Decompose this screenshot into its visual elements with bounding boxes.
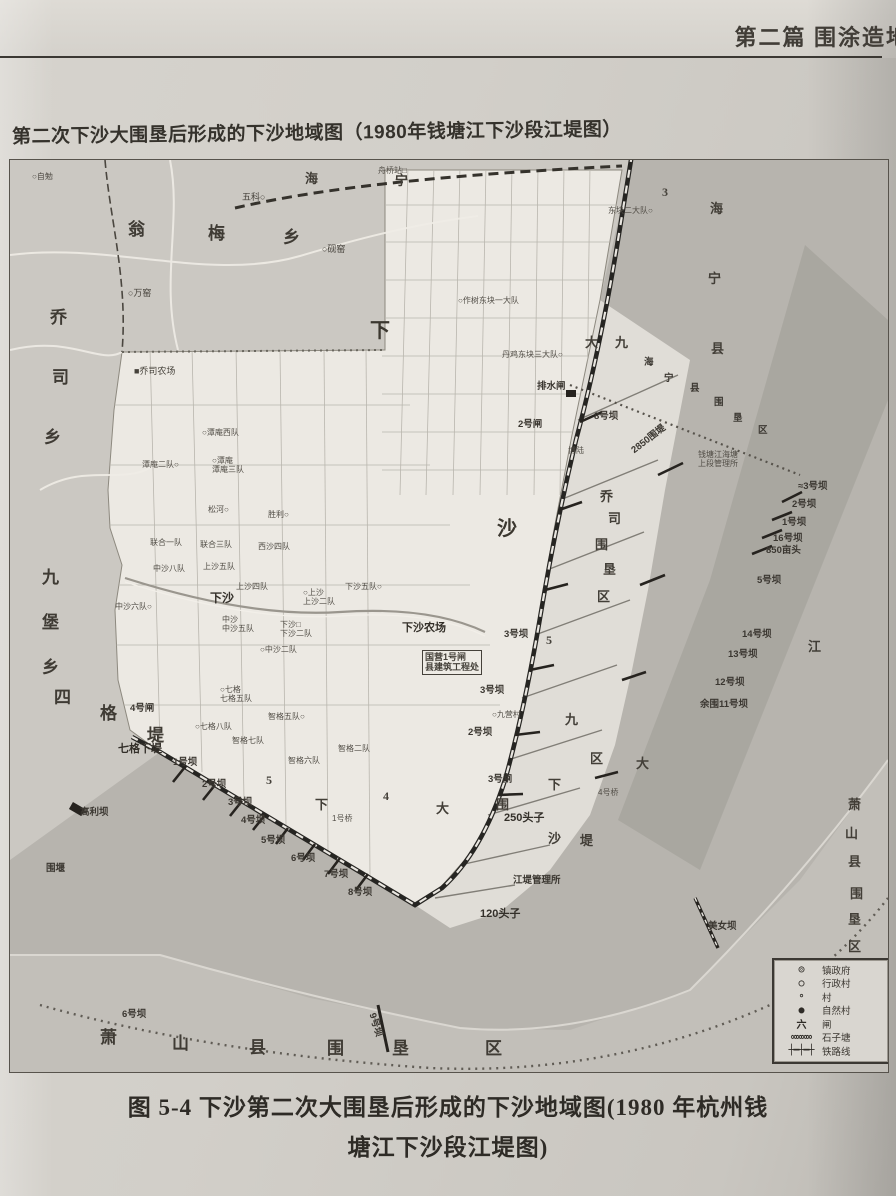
legend-label: 铁路线: [822, 1044, 882, 1058]
legend-label: 石子塘: [822, 1030, 882, 1044]
legend-row: ∘村: [780, 990, 882, 1004]
legend-row: ◎镇政府: [780, 963, 882, 977]
book-page: { "page": { "header": "第二篇 围涂造地", "map_t…: [0, 0, 896, 1196]
legend-row: ●自然村: [780, 1004, 882, 1018]
legend-symbol-icon: ◎: [780, 964, 822, 975]
header-rule: [0, 56, 882, 58]
legend-row: ∞∞∞∞石子塘: [780, 1031, 882, 1045]
legend-label: 村: [822, 990, 882, 1004]
legend-symbol-icon: ┼━┼━┼: [780, 1045, 822, 1056]
legend-label: 镇政府: [822, 963, 882, 977]
legend-label: 闸: [822, 1017, 882, 1031]
legend-label: 行政村: [822, 976, 882, 990]
legend-symbol-icon: ●: [780, 1005, 822, 1016]
legend-row: ○行政村: [780, 977, 882, 991]
legend-row: 六闸: [780, 1017, 882, 1031]
running-header: 第二篇 围涂造地: [734, 20, 896, 52]
figure-caption-line2: 塘江下沙段江堤图): [0, 1128, 896, 1162]
legend-label: 自然村: [822, 1003, 882, 1017]
figure-caption-line1: 图 5-4 下沙第二次大围垦后形成的下沙地域图(1980 年杭州钱: [0, 1088, 896, 1122]
legend-symbol-icon: ∞∞∞∞: [780, 1032, 822, 1043]
legend-symbol-icon: ○: [780, 978, 822, 989]
legend-row: ┼━┼━┼铁路线: [780, 1044, 882, 1058]
map-title: 第二次下沙大围垦后形成的下沙地域图（1980年钱塘江下沙段江堤图）: [12, 114, 622, 148]
xiasha-region-map: ◎镇政府○行政村∘村●自然村六闸∞∞∞∞石子塘┼━┼━┼铁路线 翁梅乡海宁乔司乡…: [10, 160, 888, 1072]
map-graphic: [10, 160, 888, 1072]
legend-symbol-icon: ∘: [780, 991, 822, 1002]
legend-symbol-icon: 六: [780, 1016, 822, 1031]
map-legend: ◎镇政府○行政村∘村●自然村六闸∞∞∞∞石子塘┼━┼━┼铁路线: [772, 958, 888, 1064]
